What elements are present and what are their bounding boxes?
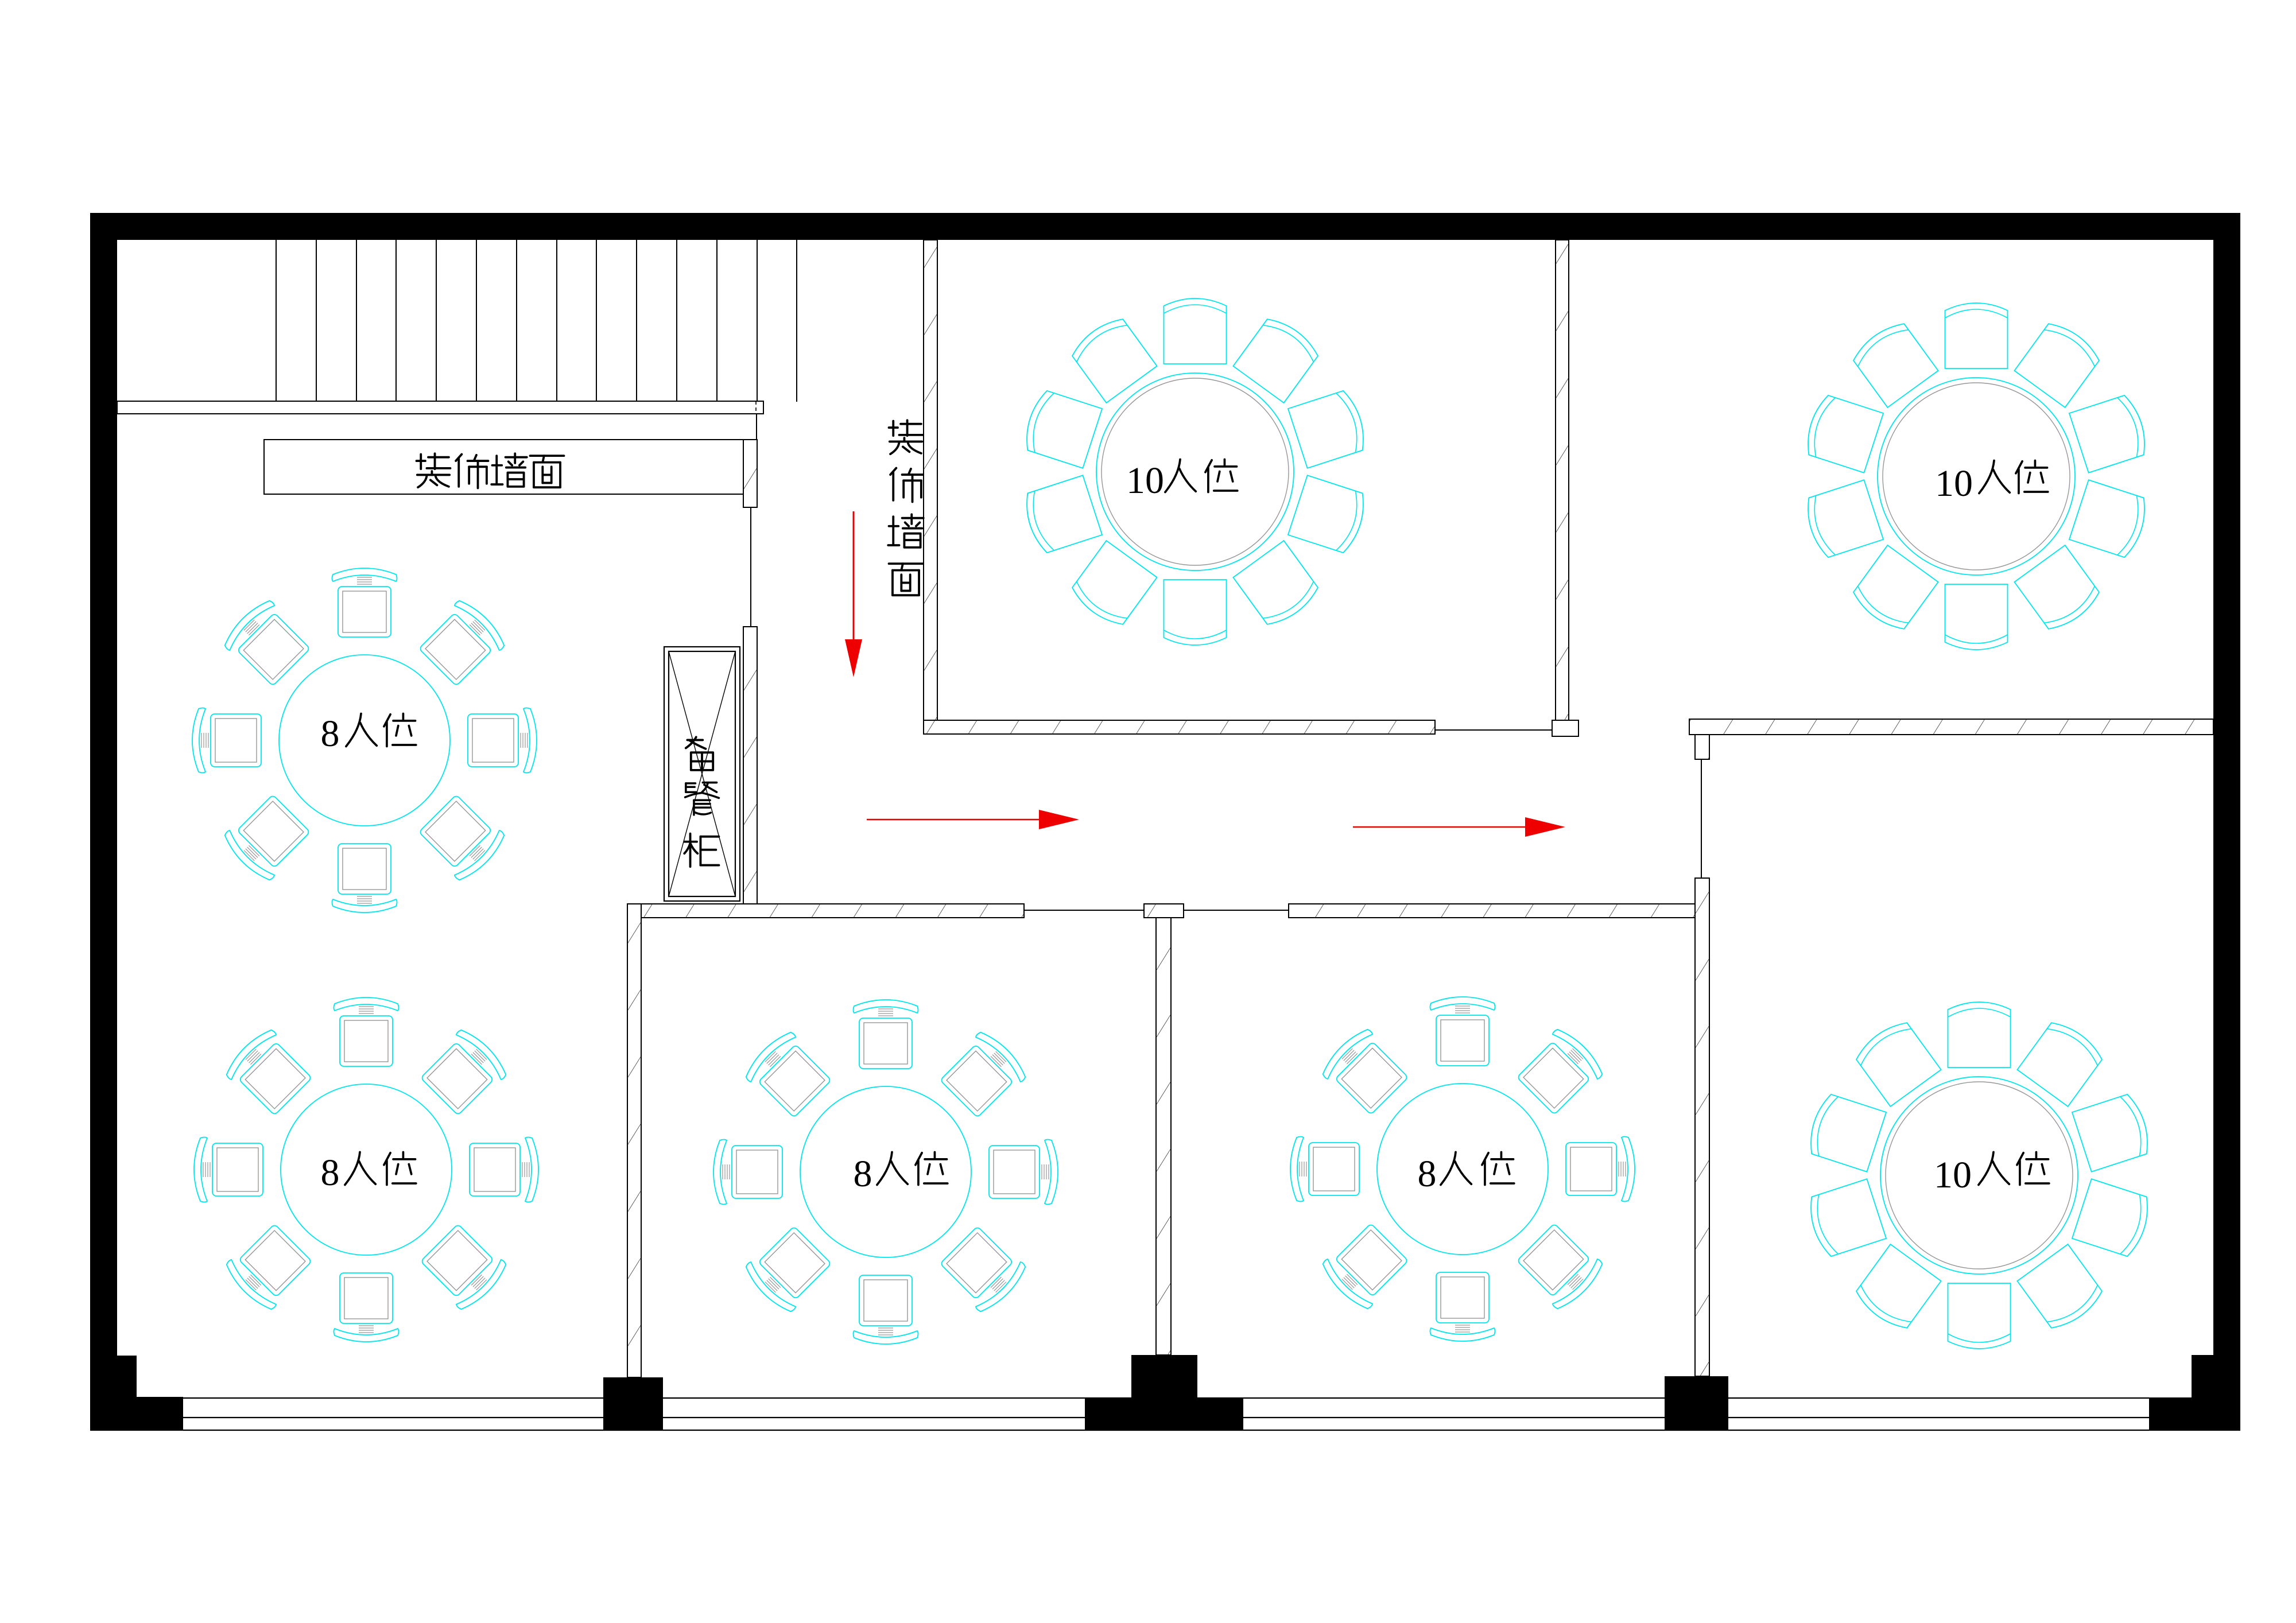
- svg-text:8: 8: [854, 1153, 872, 1195]
- svg-text:10: 10: [1935, 463, 1973, 504]
- svg-text:10: 10: [1126, 460, 1164, 502]
- svg-text:10: 10: [1934, 1154, 1972, 1196]
- svg-text:8: 8: [321, 1152, 340, 1194]
- svg-text:8: 8: [1418, 1153, 1437, 1195]
- svg-text:8: 8: [321, 713, 340, 755]
